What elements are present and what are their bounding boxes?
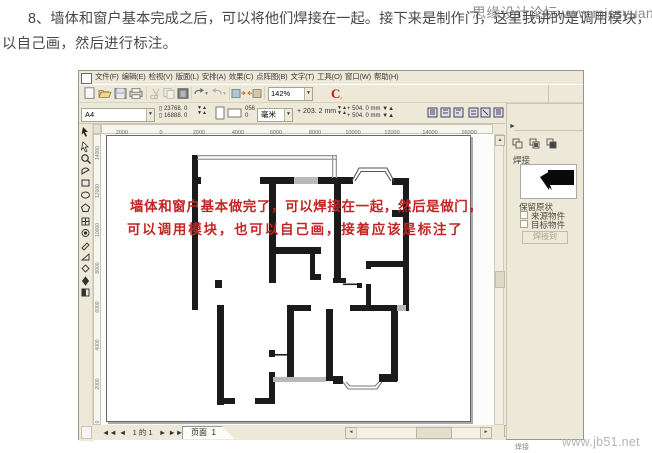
svg-text:▾: ▾ — [205, 91, 208, 97]
svg-text:▾: ▾ — [223, 91, 226, 97]
